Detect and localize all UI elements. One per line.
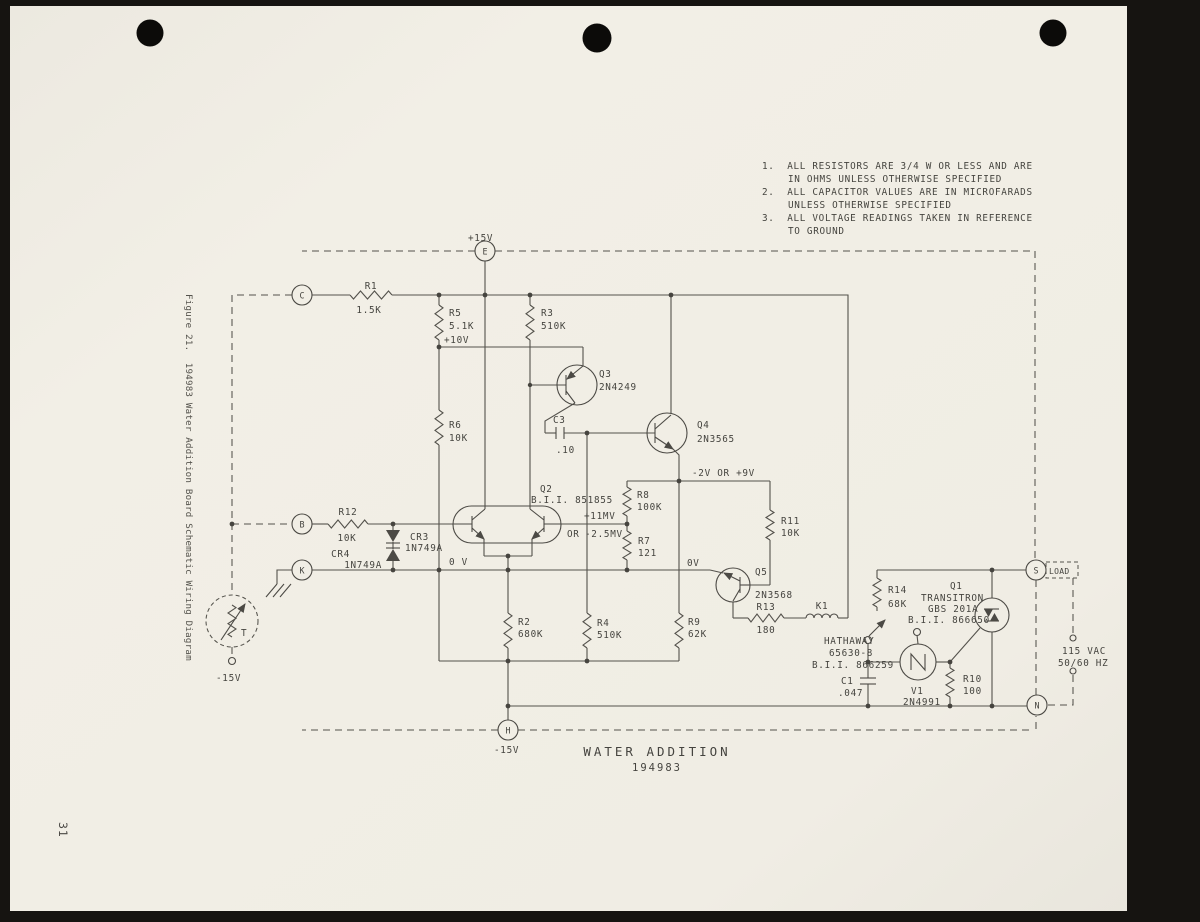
svg-text:C: C: [299, 291, 304, 301]
net-minus15-h: -15V: [494, 745, 519, 756]
svg-text:10K: 10K: [449, 433, 468, 444]
svg-text:1.5K: 1.5K: [356, 305, 381, 316]
hole-punch-icon: [583, 24, 612, 53]
svg-text:62K: 62K: [688, 629, 707, 640]
hole-punch-icon: [1040, 20, 1067, 47]
svg-text:R6: R6: [449, 420, 462, 431]
svg-text:GBS 201A: GBS 201A: [928, 604, 978, 615]
svg-text:2N4249: 2N4249: [599, 382, 637, 393]
scanned-schematic-page: 1. ALL RESISTORS ARE 3/4 W OR LESS AND A…: [0, 0, 1200, 922]
note-line: TO GROUND: [788, 226, 845, 237]
svg-text:R2: R2: [518, 617, 531, 628]
svg-text:Q3: Q3: [599, 369, 612, 380]
svg-text:R5: R5: [449, 308, 462, 319]
svg-text:TRANSITRON: TRANSITRON: [921, 593, 984, 604]
svg-text:2N3565: 2N3565: [697, 434, 735, 445]
svg-text:C3: C3: [553, 415, 566, 426]
svg-text:HATHAWAY: HATHAWAY: [824, 636, 874, 647]
svg-text:E: E: [482, 247, 487, 257]
page-number: 31: [56, 822, 70, 838]
svg-text:B.I.I. 851855: B.I.I. 851855: [531, 495, 613, 506]
svg-text:K1: K1: [816, 601, 829, 612]
net-plus15: +15V: [468, 233, 493, 244]
svg-text:R3: R3: [541, 308, 554, 319]
ac-frequency: 50/60 HZ: [1058, 658, 1108, 669]
svg-text:510K: 510K: [541, 321, 566, 332]
svg-text:B.I.I. 866259: B.I.I. 866259: [812, 660, 894, 671]
svg-text:2N3568: 2N3568: [755, 590, 793, 601]
svg-text:100K: 100K: [637, 502, 662, 513]
svg-text:R7: R7: [638, 536, 651, 547]
svg-text:B.I.I. 866650: B.I.I. 866650: [908, 615, 990, 626]
svg-text:CR3: CR3: [410, 532, 429, 543]
load-label: LOAD: [1049, 567, 1069, 576]
net-0v-right: 0V: [687, 558, 700, 569]
svg-text:B: B: [299, 520, 304, 530]
svg-text:5.1K: 5.1K: [449, 321, 474, 332]
paper-sheet: [10, 6, 1127, 911]
svg-text:Q5: Q5: [755, 567, 768, 578]
note-line: UNLESS OTHERWISE SPECIFIED: [788, 200, 952, 211]
note-line: IN OHMS UNLESS OTHERWISE SPECIFIED: [788, 174, 1002, 185]
svg-text:Q4: Q4: [697, 420, 710, 431]
note-line: 1. ALL RESISTORS ARE 3/4 W OR LESS AND A…: [762, 161, 1033, 172]
net-minus15-probe: -15V: [216, 673, 241, 684]
net-plus10: +10V: [444, 335, 469, 346]
svg-text:H: H: [505, 726, 510, 736]
svg-text:C1: C1: [841, 676, 854, 687]
net-q4: -2V OR +9V: [692, 468, 755, 479]
svg-text:180: 180: [757, 625, 776, 636]
figure-caption: Figure 21. 194983 Water Addition Board S…: [183, 294, 194, 661]
svg-text:1N749A: 1N749A: [344, 560, 382, 571]
net-mv-or: OR: [567, 529, 580, 540]
svg-text:Q1: Q1: [950, 581, 963, 592]
net-0v-left: 0 V: [449, 557, 468, 568]
title-name: WATER ADDITION: [583, 744, 730, 759]
svg-text:Q2: Q2: [540, 484, 553, 495]
net-mv-pos: +11MV: [584, 511, 616, 522]
svg-text:N: N: [1034, 701, 1039, 711]
svg-text:510K: 510K: [597, 630, 622, 641]
svg-text:R10: R10: [963, 674, 982, 685]
svg-text:65630-8: 65630-8: [829, 648, 873, 659]
svg-text:R12: R12: [339, 507, 358, 518]
svg-text:R4: R4: [597, 618, 610, 629]
svg-text:R8: R8: [637, 490, 650, 501]
svg-text:68K: 68K: [888, 599, 907, 610]
note-line: 3. ALL VOLTAGE READINGS TAKEN IN REFEREN…: [762, 213, 1033, 224]
ac-voltage: 115 VAC: [1062, 646, 1106, 657]
hole-punch-icon: [137, 20, 164, 47]
svg-text:R11: R11: [781, 516, 800, 527]
svg-text:.047: .047: [838, 688, 863, 699]
svg-text:R9: R9: [688, 617, 701, 628]
svg-text:S: S: [1033, 566, 1038, 576]
svg-text:R14: R14: [888, 585, 907, 596]
svg-text:CR4: CR4: [331, 549, 350, 560]
svg-text:121: 121: [638, 548, 657, 559]
svg-text:100: 100: [963, 686, 982, 697]
svg-text:1N749A: 1N749A: [405, 543, 443, 554]
svg-text:10K: 10K: [338, 533, 357, 544]
svg-text:10K: 10K: [781, 528, 800, 539]
svg-text:V1: V1: [911, 686, 924, 697]
relay-contact: [914, 629, 921, 636]
svg-text:2N4991: 2N4991: [903, 697, 941, 708]
svg-text:R1: R1: [365, 281, 378, 292]
net-mv-neg: -2.5MV: [585, 529, 623, 540]
note-line: 2. ALL CAPACITOR VALUES ARE IN MICROFARA…: [762, 187, 1033, 198]
probe-t-label: T: [241, 628, 247, 639]
svg-text:.10: .10: [556, 445, 575, 456]
svg-text:R13: R13: [757, 602, 776, 613]
title-number: 194983: [632, 762, 682, 774]
svg-text:680K: 680K: [518, 629, 543, 640]
